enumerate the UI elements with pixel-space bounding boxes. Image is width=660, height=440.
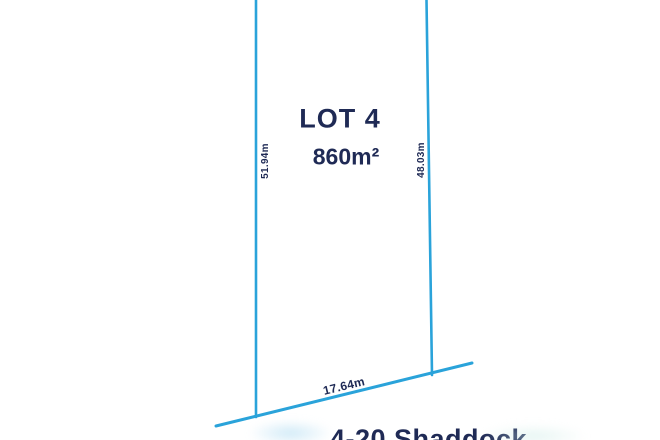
right-dimension-label: 48.03m	[417, 142, 427, 178]
lot-number-label: LOT 4	[299, 106, 381, 133]
lot-plan-diagram: LOT 4 860m² 51.94m 48.03m 17.64m 4-20 Sh…	[0, 0, 660, 440]
lot-area-label: 860m²	[313, 146, 379, 169]
boundary-lines	[0, 0, 660, 440]
address-text: 4-20 Shaddock	[330, 426, 527, 440]
frontage-boundary-line	[216, 363, 472, 426]
right-boundary-line	[427, 0, 433, 375]
left-dimension-label: 51.94m	[261, 143, 271, 179]
